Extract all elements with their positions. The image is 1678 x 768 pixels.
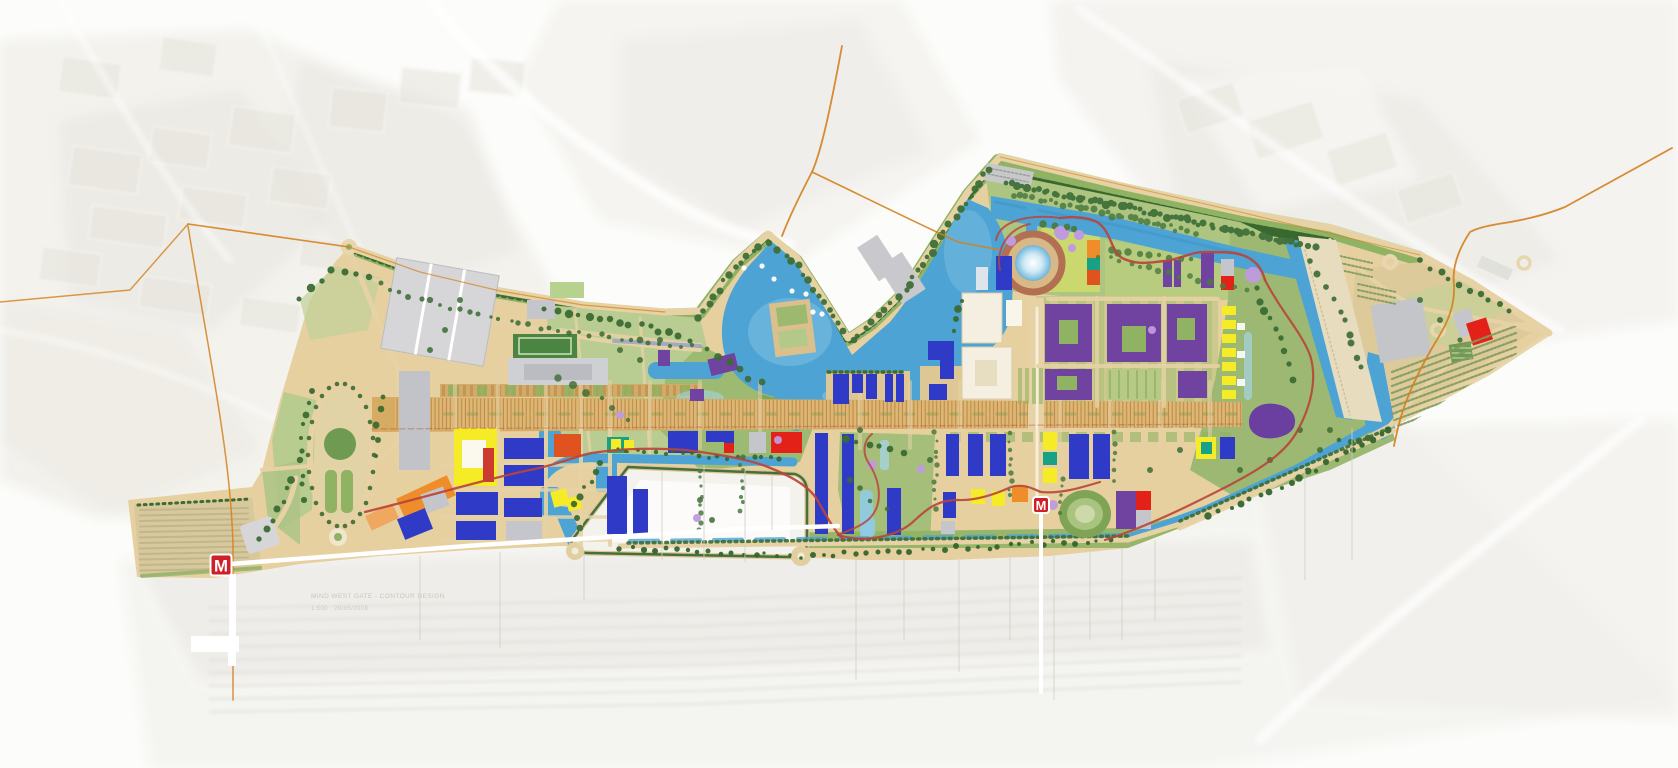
svg-text:M: M xyxy=(214,557,228,576)
svg-text:M: M xyxy=(1036,498,1047,513)
svg-text:MIND WEST GATE - CONTOUR DESIG: MIND WEST GATE - CONTOUR DESIGN xyxy=(311,593,445,600)
svg-text:1:500 29/05/2008: 1:500 29/05/2008 xyxy=(311,606,369,612)
